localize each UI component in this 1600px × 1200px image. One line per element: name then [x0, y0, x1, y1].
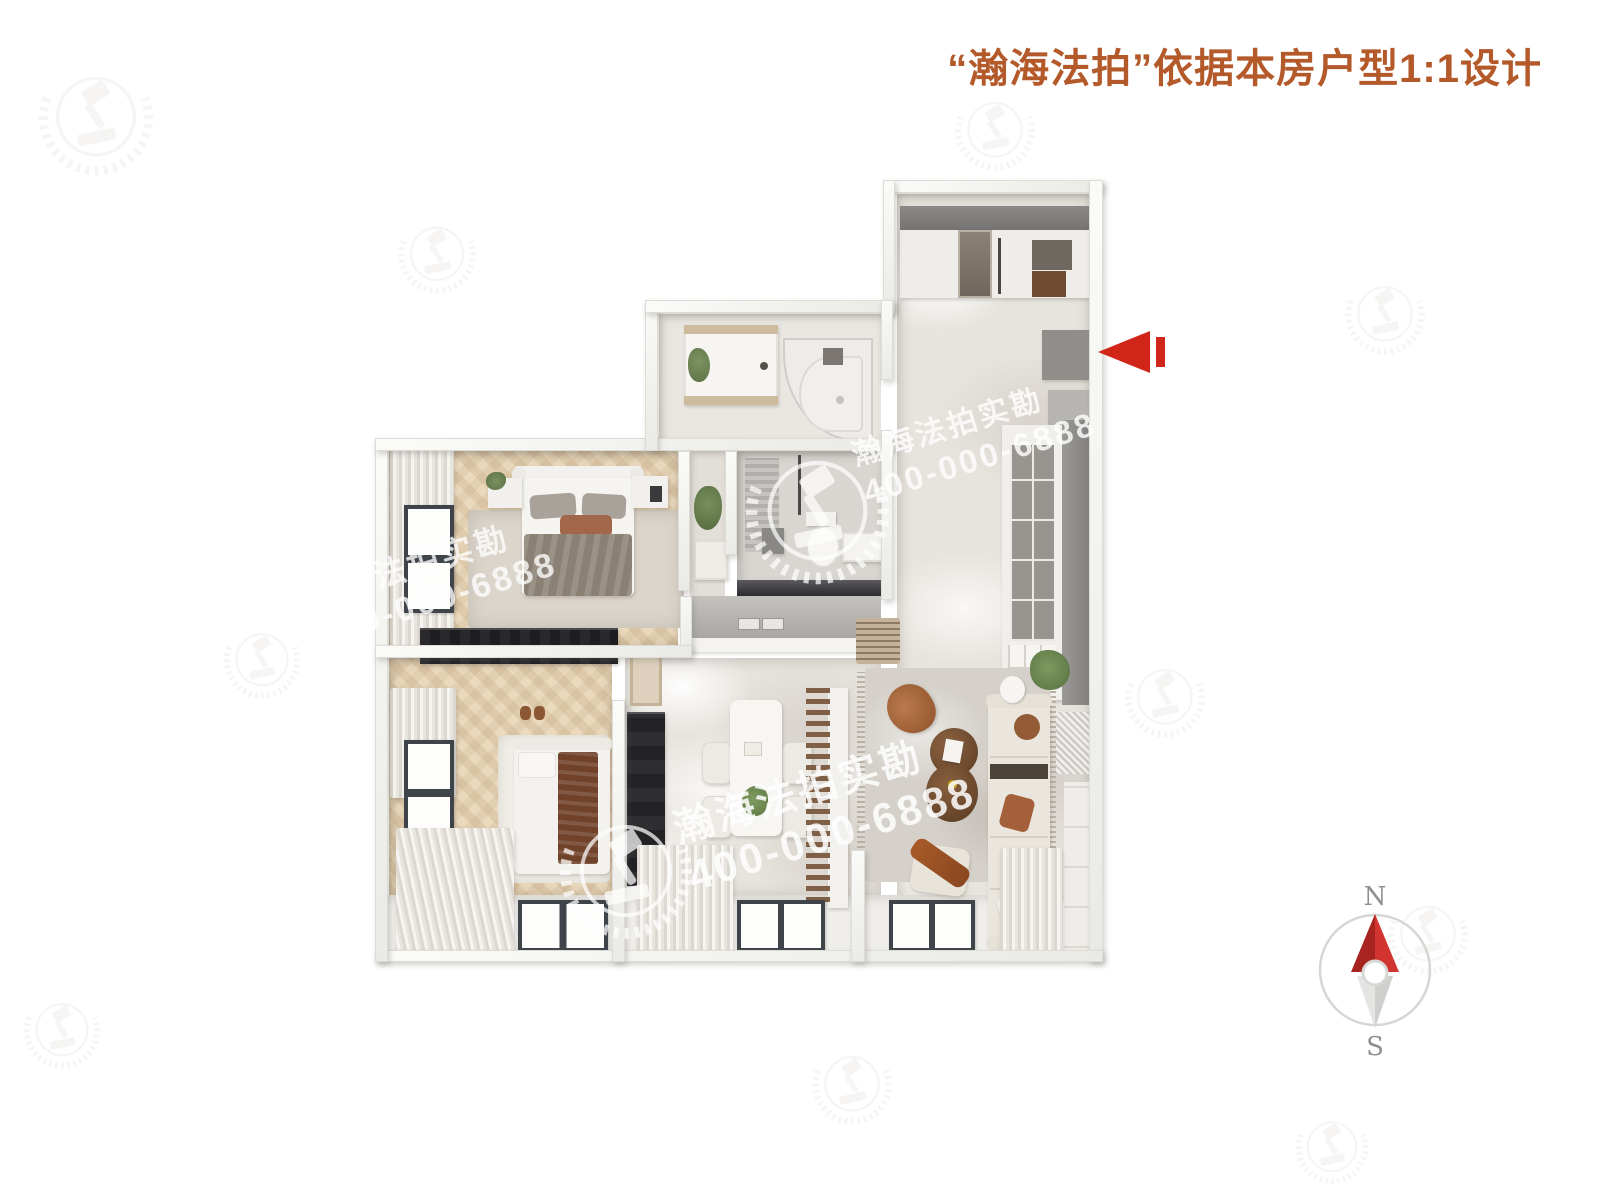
foyer-cabinet-glass-strip: [958, 230, 992, 298]
band-window-living: [889, 900, 975, 952]
kitchen-counter: [692, 638, 881, 652]
hall-display-glass-grid: [1010, 445, 1054, 641]
kitchen-burner: [738, 618, 760, 630]
ghost-logo-icon: [806, 1036, 898, 1128]
shower-drain: [836, 396, 844, 404]
ghost-logo-icon: [1119, 649, 1211, 741]
kitchen-burner: [762, 618, 784, 630]
bathroom-faucet: [760, 362, 768, 370]
wall-bedrooms-divider: [375, 645, 692, 658]
wall-foyer-left: [883, 180, 895, 314]
wall-bedroom1-east: [678, 451, 690, 591]
foyer-ceiling-band: [900, 206, 1089, 230]
ghost-logo-icon: [1339, 266, 1431, 358]
wall-foyer-top: [893, 180, 1103, 193]
wall-right: [1089, 180, 1103, 962]
wall-left: [375, 438, 388, 962]
band-window-dining: [737, 900, 825, 952]
page-title: “瀚海法拍”依据本房户型1:1设计: [947, 36, 1542, 94]
band-curtain-living: [1000, 848, 1062, 958]
shower-control-panel: [823, 348, 843, 365]
wall-art-frame: [630, 652, 662, 706]
ghost-logo-icon: [30, 48, 162, 180]
bedroom2-slippers: [520, 706, 531, 720]
foyer-cabinet-handle: [998, 238, 1001, 294]
bathroom-plant-icon: [688, 348, 710, 382]
ghost-logo-icon: [18, 984, 106, 1072]
wall-kitchen-left: [680, 596, 692, 652]
sofa-console: [990, 764, 1048, 779]
living-side-table: [1000, 676, 1025, 703]
band-curtain-bedroom2: [396, 828, 514, 956]
ghost-logo-icon: [392, 207, 482, 297]
wall-bottom: [375, 950, 1103, 962]
sofa-plant-icon: [1030, 650, 1070, 690]
dining-tray: [744, 742, 762, 756]
ghost-logo-icon: [218, 614, 306, 702]
foyer-cabinet-dark-cell: [1032, 240, 1072, 270]
ghost-logo-icon: [949, 82, 1041, 174]
sofa-cushion-seam: [990, 756, 1048, 758]
dining-chair: [702, 742, 732, 784]
living-wall-panels: [1064, 782, 1089, 948]
living-vent-hatch: [1056, 712, 1089, 774]
entrance-arrow-bar: [1156, 337, 1165, 367]
wall-bath-top: [645, 300, 895, 313]
floorplan-poster: 瀚海法拍实勘 400-000-6888 瀚海法拍实勘 400-000-6888 …: [0, 0, 1600, 1200]
bedroom2-pillow: [518, 752, 556, 778]
bedroom2-slippers: [534, 706, 545, 720]
bathroom-vanity-wood-trim-top: [684, 325, 778, 334]
compass-icon: [1305, 880, 1445, 1050]
wall-hall-bath: [881, 300, 893, 380]
nightstand-tablet: [650, 486, 662, 502]
shower-tray: [799, 356, 863, 432]
compass-south-label: S: [1305, 1032, 1445, 1062]
sofa-cushion-seam: [990, 836, 1048, 838]
slat-bench: [856, 618, 900, 664]
ghost-logo-icon: [1290, 1103, 1374, 1187]
wall-bath-left: [645, 300, 658, 451]
wall-bottom-stub: [851, 850, 865, 962]
nook-table: [694, 540, 728, 580]
bedroom2-bed-headboard: [512, 738, 612, 750]
kitchen-back-wall: [692, 596, 881, 640]
bathroom-vanity-wood-trim-bottom: [684, 396, 778, 405]
foyer-cabinet-wood-box: [1032, 271, 1066, 297]
sofa-round-pillow: [1014, 714, 1040, 740]
entrance-arrow-icon: [1098, 331, 1150, 373]
